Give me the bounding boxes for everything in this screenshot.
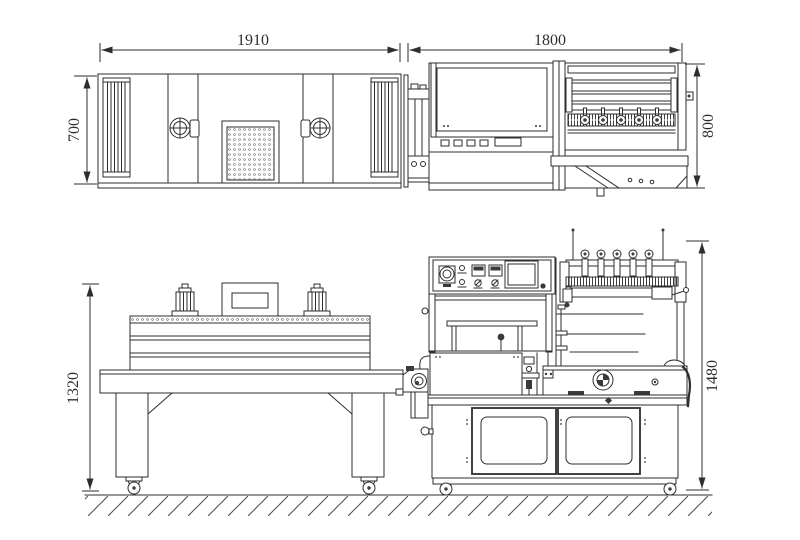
tunnel-control-box (222, 283, 278, 316)
sealer-film-rack-side (560, 229, 689, 367)
dim-label-1910: 1910 (237, 32, 269, 49)
sealer-seal-chamber (422, 294, 552, 352)
ground-hatch (85, 495, 712, 516)
dim-label-1320: 1320 (65, 372, 82, 404)
tunnel-motor-right (304, 284, 330, 316)
dimension-sealer-height: 1480 (686, 241, 721, 490)
sealer-film-rack-top (565, 63, 693, 150)
dim-label-1480: 1480 (704, 360, 721, 392)
dimension-tunnel-depth: 700 (66, 76, 97, 184)
tunnel-right-curtain (371, 78, 398, 177)
dim-label-800: 800 (700, 114, 717, 138)
view-sealer-side (396, 229, 690, 496)
tunnel-motor-left (172, 284, 198, 316)
view-sealer-top (404, 61, 693, 196)
dimension-sealer-width: 1800 (408, 32, 682, 62)
sealer-infeed-bracket (408, 156, 432, 182)
view-tunnel-side (100, 283, 403, 494)
dim-label-700: 700 (66, 118, 83, 142)
dim-label-1800: 1800 (534, 32, 566, 49)
tunnel-caster-right (361, 477, 377, 494)
drawing-canvas: 1910 1800 700 800 1320 1480 (0, 0, 800, 540)
dimension-tunnel-width: 1910 (100, 32, 400, 62)
tunnel-table (100, 370, 403, 393)
view-tunnel-top (98, 74, 401, 188)
sealer-caster-right (664, 483, 676, 495)
machine-dimension-drawing: 1910 1800 700 800 1320 1480 (0, 0, 800, 540)
sealer-base-bay-top (565, 166, 687, 196)
tunnel-caster-left (126, 477, 142, 494)
dimension-sealer-depth: 800 (685, 64, 717, 188)
tunnel-left-curtain (103, 78, 130, 177)
tunnel-conveyor-edge (130, 316, 370, 323)
dimension-tunnel-height: 1320 (65, 284, 99, 491)
tunnel-handwheel-right (301, 118, 330, 138)
sealer-caster-left (440, 483, 452, 495)
sealer-infeed-cover (430, 353, 539, 397)
tunnel-handwheel-left (170, 118, 199, 138)
sealer-control-panel (429, 257, 555, 294)
sealer-hood-top (431, 63, 553, 137)
sealer-cabinet (421, 405, 678, 484)
tunnel-vent-panel (222, 121, 279, 183)
